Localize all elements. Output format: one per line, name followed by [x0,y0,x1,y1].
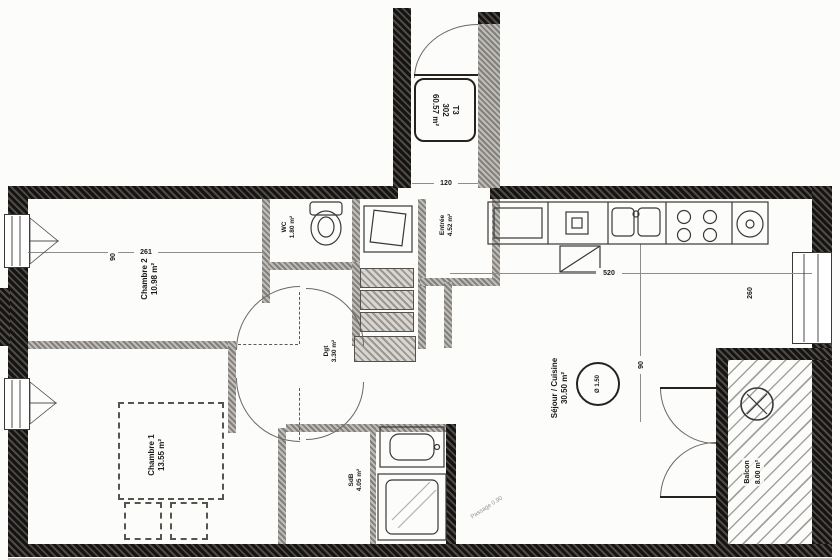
room-area: 30.50 m² [560,372,570,404]
room-name: WC [281,222,289,233]
unit-badge-text: T3 302 60.57 m² [430,94,460,126]
turning-circle-label: Ø 1.50 [595,375,601,393]
dimension-label: 261 [134,247,158,257]
room-name: Entrée [439,215,447,235]
room-name: Balcon [742,458,753,485]
room-label-sdb: SdB 4.05 m² [343,457,369,503]
room-name: Chambre 2 [140,258,150,299]
floor-plan: Chambre 2 10.98 m² Chambre 1 13.55 m² WC… [0,0,840,560]
room-area: 1.80 m² [289,216,297,238]
room-area: 10.98 m² [150,263,160,295]
toilet-icon [310,202,342,245]
room-label-sejour: Séjour / Cuisine 30.50 m² [544,346,576,430]
door-leaf-dashed [238,344,298,345]
door-leaf-dashed [299,292,300,344]
unit-lot: 302 [440,103,450,116]
dimension-label: 520 [596,268,622,278]
kitchen-counter-icon [488,202,768,272]
dimension-label: 120 [434,178,458,188]
window-swing-triangles [30,218,58,424]
unit-type: T3 [450,105,460,114]
room-name: Dgt [323,346,331,357]
balcony-table-icon [741,388,773,420]
room-label-balcon: Balcon 8.00 m² [739,440,767,504]
unit-area: 60.57 m² [430,94,440,126]
bathroom-shower-icon [378,474,446,540]
dimension-label: 90 [636,356,646,374]
room-area: 3.30 m² [331,340,339,362]
bathroom-sink-icon [380,427,444,467]
unit-badge: T3 302 60.57 m² [414,78,476,142]
shower-tray-icon [364,206,412,252]
dimension-label: 260 [745,283,755,303]
room-label-wc: WC 1.80 m² [276,205,302,249]
dimension-label: 90 [108,248,118,266]
balcony-door-leaf [660,496,716,498]
door-leaf-dashed [299,388,300,440]
room-name: SdB [348,474,356,487]
balcony-door-leaf [660,387,716,389]
entry-door-leaf [414,74,478,76]
room-label-chambre1: Chambre 1 13.55 m² [142,415,172,495]
room-name: Chambre 1 [147,434,157,475]
room-area: 4.52 m² [447,214,455,236]
room-area: 4.05 m² [356,469,364,491]
room-name: Séjour / Cuisine [550,358,560,418]
room-label-degagement: Dgt 3.30 m² [318,329,344,373]
turning-circle: Ø 1.50 [576,362,620,406]
room-label-entree: Entrée 4.52 m² [434,202,460,248]
room-area: 8.00 m² [753,458,764,486]
room-area: 13.55 m² [157,439,167,471]
